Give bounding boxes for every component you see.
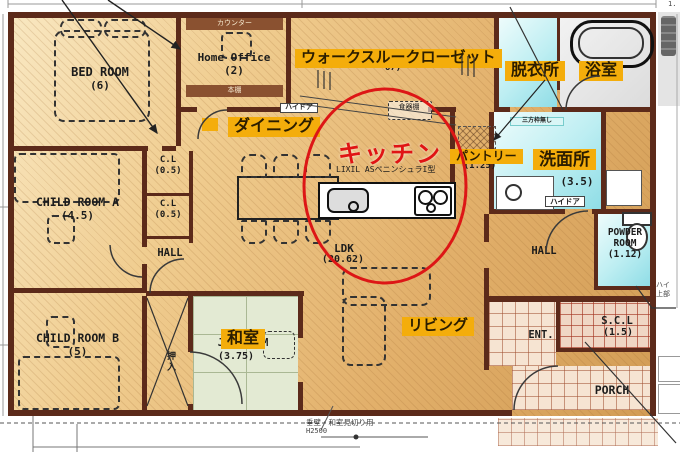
wall [146, 291, 304, 296]
wall [484, 296, 656, 302]
counter-note: カウンター [186, 20, 283, 27]
wall [176, 107, 197, 112]
high-door-tag: ハイドア [280, 103, 318, 113]
label-bathroom: 浴室 [579, 61, 623, 81]
wall [556, 302, 560, 348]
label-japanese-room: 和室 [221, 329, 265, 349]
burner-small [426, 203, 436, 213]
wall [8, 146, 148, 151]
ldk-size: (20.62) [312, 255, 374, 266]
burner [433, 190, 448, 205]
powder-size: (1.12) [596, 250, 654, 260]
wall [146, 193, 189, 196]
wall [188, 404, 193, 416]
high-door-tag: ハイドア [545, 196, 585, 207]
child-b-name: CHILD ROOM B [10, 332, 145, 344]
wall [484, 302, 489, 370]
powder-line1: POWDER [598, 228, 652, 238]
neighbor-box [658, 384, 680, 414]
closet2-name: C.L [146, 200, 190, 209]
home-office-size: (2) [185, 65, 283, 77]
closet1-size: (0.5) [146, 167, 190, 176]
porch-name: PORCH [584, 384, 640, 396]
wall [286, 12, 291, 112]
neighbor-box [658, 356, 680, 382]
wall [494, 107, 510, 112]
label-dining: ダイニング [228, 117, 320, 137]
dimension-fragment: 1. [668, 1, 676, 9]
wall [298, 382, 303, 416]
bedroom-size: (6) [30, 80, 170, 92]
label-pantry: パントリー [450, 149, 523, 164]
floor-plan: BED ROOM (6) Home Office (2) カウンター 本棚 食器… [0, 0, 680, 452]
dish-cabinet-note: 食器棚 [388, 104, 430, 111]
closet1-name: C.L [146, 156, 190, 165]
label-living: リビング [402, 317, 474, 336]
pillow [60, 19, 102, 38]
label-walk-through-closet: ウォークスルークローゼット [295, 49, 502, 68]
bookshelf-note: 本棚 [186, 87, 283, 94]
pantry-shelf-hatch [458, 126, 496, 150]
dining-chair [305, 154, 331, 178]
wall [146, 236, 189, 239]
dining-chair [273, 220, 299, 244]
apron-tiles [498, 418, 658, 446]
washroom-size: (3.5) [552, 176, 602, 188]
dining-chair [241, 220, 267, 244]
right-cut-note-1: ハイ [656, 282, 670, 290]
wall [594, 286, 656, 290]
wall [484, 214, 489, 242]
wall [8, 410, 512, 416]
closet2-size: (0.5) [146, 211, 190, 220]
wall [162, 146, 176, 151]
wall [176, 12, 181, 146]
wall [8, 288, 147, 293]
scl-name: S.C.L [594, 316, 640, 327]
scl-size: (1.5) [596, 328, 640, 339]
child-b-bed [18, 356, 120, 410]
label-kitchen: キッチン [338, 134, 442, 169]
dining-chair [273, 154, 299, 178]
jap-room-size: (3.75) [196, 352, 276, 363]
hall-east-name: HALL [524, 246, 564, 257]
child-a-name: CHILD ROOM A [10, 196, 145, 208]
child-a-size: (4.5) [10, 210, 145, 222]
label-dressing-room: 脱衣所 [505, 61, 565, 81]
right-cut-note-2: 上部 [656, 291, 670, 299]
home-office-name: Home Office [185, 52, 283, 64]
bottom-note-height: H2500 [306, 428, 327, 436]
bedroom-name: BED ROOM [30, 66, 170, 79]
wall [556, 348, 656, 352]
water-heater-unit [661, 16, 676, 56]
powder-line2: ROOM [598, 239, 652, 249]
dining-chair [241, 154, 267, 178]
vanity-sink [505, 184, 522, 201]
bathtub-inner [578, 27, 644, 59]
oshiire-name: 押入 [160, 340, 174, 384]
child-b-size: (5) [10, 346, 145, 358]
entrance-name: ENT. [522, 330, 560, 341]
sofa-chaise [342, 296, 386, 366]
label-chip [202, 118, 218, 131]
ldk-name: LDK [318, 243, 370, 255]
linen-cabinet [606, 170, 642, 206]
frame-note-tag: 三方枠無し [510, 117, 564, 126]
faucet [348, 201, 359, 212]
dining-chair [305, 220, 331, 244]
wall [298, 296, 303, 338]
pillow [104, 19, 146, 38]
bottom-note: 垂壁・和室見切り用 [306, 419, 374, 427]
hall-west-name: HALL [146, 248, 194, 259]
label-washroom: 洗面所 [533, 149, 596, 170]
